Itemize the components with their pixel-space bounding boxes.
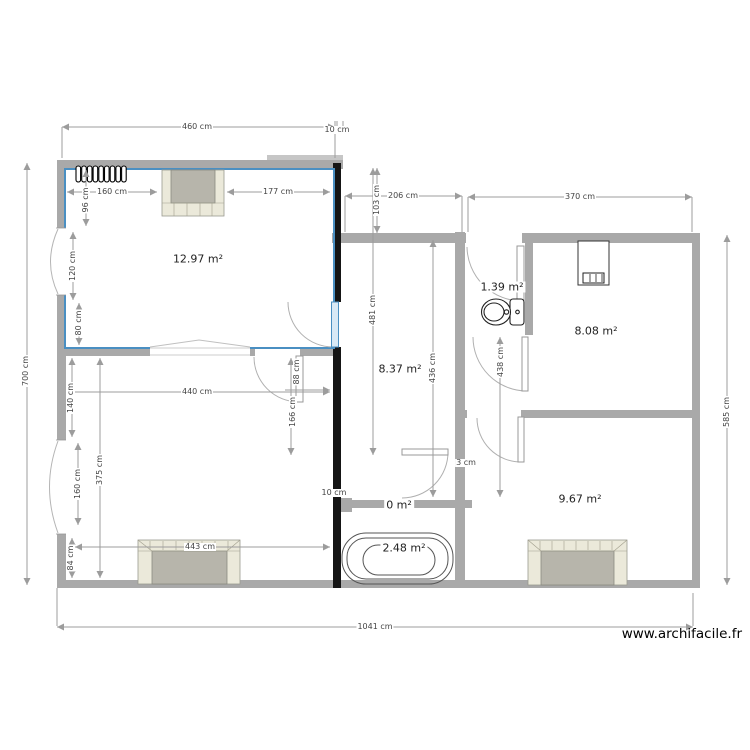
- watermark: www.archifacile.fr: [622, 626, 742, 642]
- floor-plan-canvas[interactable]: 12.97 m²8.37 m²1.39 m²8.08 m²9.67 m²0 m²…: [0, 0, 750, 750]
- door-bedroom-right: [288, 302, 339, 347]
- wall-wc-right: [525, 240, 533, 335]
- wall-hall-top: [332, 233, 466, 243]
- fireplace-top-icon: [162, 170, 224, 216]
- wall-bathroom-top: [340, 500, 472, 508]
- radiator-icon: [76, 166, 126, 182]
- bathtub-icon: [342, 533, 453, 584]
- fireplace-bottom-right-icon: [528, 540, 627, 585]
- wall-right-mid-b: [521, 410, 700, 418]
- wall-right-mid-a: [455, 410, 467, 418]
- wall-wc-bottom-a: [455, 327, 465, 335]
- electrical-panel-icon: [578, 241, 609, 285]
- door-wc: [467, 246, 524, 301]
- walls-layer: [57, 155, 700, 588]
- wall-right-top: [522, 233, 700, 243]
- window-left-bottom: [50, 440, 67, 534]
- window-left-top: [51, 228, 67, 295]
- wall-black-lower: [333, 347, 341, 588]
- window-bedroom-bottom: [150, 340, 250, 356]
- door-bathroom: [402, 449, 448, 498]
- toilet-icon: [482, 299, 525, 325]
- wall-wc-bottom-b: [525, 327, 533, 335]
- door-bottom-left-room: [254, 356, 303, 402]
